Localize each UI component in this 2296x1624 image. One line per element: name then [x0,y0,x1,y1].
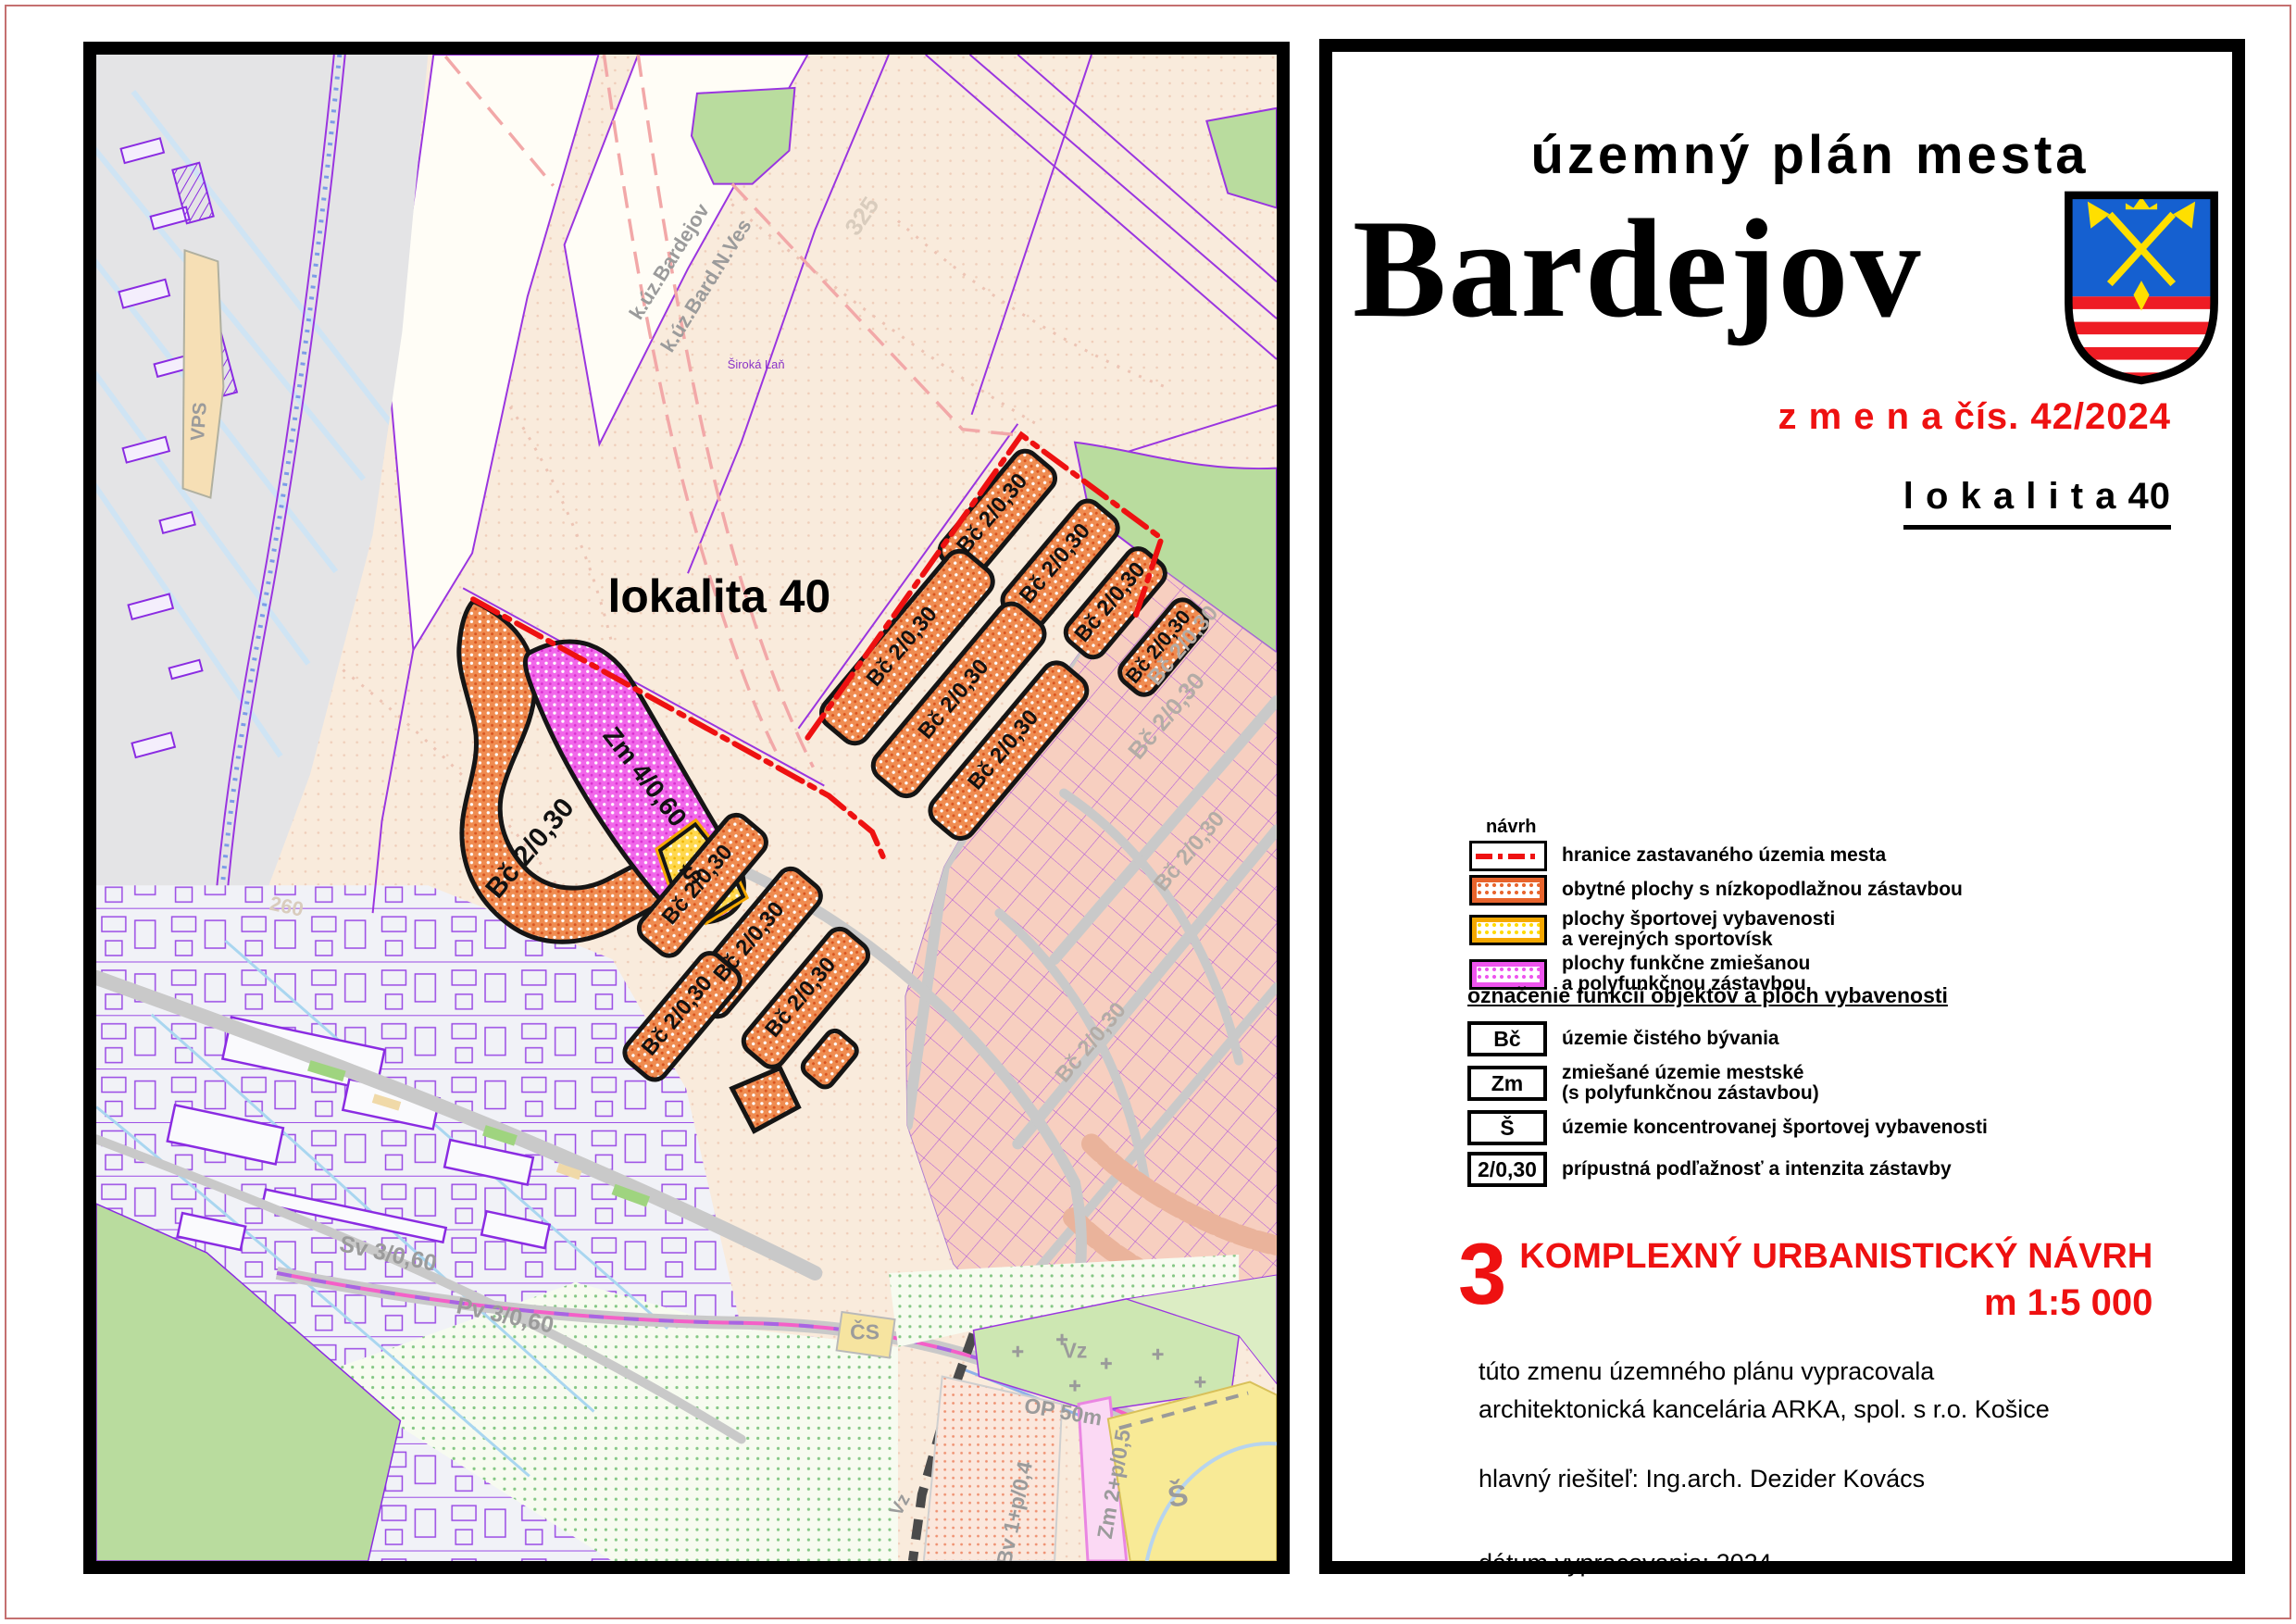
function-codes-legend: označenie funkcií objektov a plôch vybav… [1467,983,1988,1193]
residential-swatch-icon [1469,875,1547,906]
map-canvas: lokalita 40Bč 2/0,30Zm 4/0,60ŠBč 2/0,30B… [96,55,1277,1561]
legend-row-boundary: hranice zastavaného územia mesta [1469,841,1963,871]
credits: túto zmenu územného plánu vypracovala ar… [1479,1352,2050,1578]
title-panel: územný plán mesta Bardejov z m e n a čís [1319,39,2245,1574]
bardejov-coat-of-arms [2062,189,2221,385]
map-label: lokalita 40 [608,570,831,622]
function-row-zm: Zm zmiešané územie mestské(s polyfunkčno… [1467,1063,1988,1104]
plan-suptitle: územný plán mesta [1332,124,2232,186]
function-row-bc: Bč územie čistého bývania [1467,1021,1988,1056]
legend-navrh-header: návrh [1486,817,1963,838]
boundary-swatch-icon [1469,841,1547,871]
credits-line2: architektonická kancelária ARKA, spol. s… [1479,1395,2050,1424]
map-label: ČS [850,1320,880,1344]
change-number-line: z m e n a čís. 42/2024 [1778,396,2171,438]
sheet-scale: m 1:5 000 [1519,1282,2152,1324]
legend: návrh hranice zastavaného územia mesta o… [1469,817,1963,998]
credits-line1: túto zmenu územného plánu vypracovala [1479,1357,2050,1386]
sheet-title: KOMPLEXNÝ URBANISTICKÝ NÁVRH [1519,1237,2152,1277]
sport-swatch-icon [1469,915,1547,945]
plan-sheet: { "title_block": { "suptitle": "územný p… [0,0,2296,1624]
credits-line3: hlavný riešiteľ: Ing.arch. Dezider Kovác… [1479,1465,2050,1493]
sheet-heading: 3 KOMPLEXNÝ URBANISTICKÝ NÁVRH m 1:5 000 [1458,1237,2152,1324]
function-row-intensity: 2/0,30 prípustná podľažnosť a intenzita … [1467,1152,1988,1187]
map-label: VPS [187,402,211,442]
locality-line: l o k a l i t a 40 [1903,476,2171,530]
legend-row-residential: obytné plochy s nízkopodlažnou zástavbou [1469,875,1963,906]
function-row-s: Š územie koncentrovanej športovej vybave… [1467,1110,1988,1145]
legend-row-sport: plochy športovej vybavenostia verejných … [1469,909,1963,950]
sheet-number: 3 [1458,1237,1506,1324]
map-label: Vz [1063,1339,1088,1363]
city-name: Bardejov [1353,198,1922,339]
credits-line4: dátum vypracovania: 2024 [1479,1549,2050,1578]
function-codes-header: označenie funkcií objektov a plôch vybav… [1467,983,1988,1008]
map-label: Široká Laň [728,357,785,371]
map-panel: lokalita 40Bč 2/0,30Zm 4/0,60ŠBč 2/0,30B… [83,42,1290,1574]
